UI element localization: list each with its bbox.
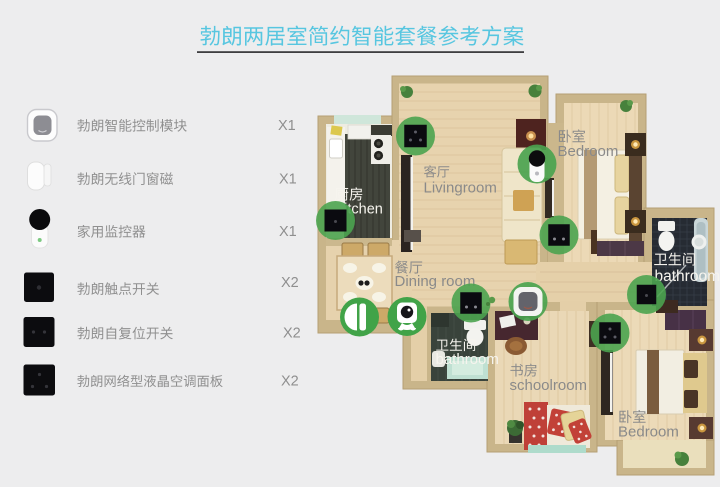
svg-text:bathroom: bathroom [436, 351, 499, 368]
svg-text:X1: X1 [279, 171, 297, 187]
svg-text:X1: X1 [279, 224, 297, 240]
svg-text:Bedroom: Bedroom [558, 143, 619, 160]
svg-text:X2: X2 [281, 373, 299, 389]
svg-text:Livingroom: Livingroom [424, 180, 497, 197]
svg-text:schoolroom: schoolroom [510, 377, 588, 394]
svg-text:Bedroom: Bedroom [618, 424, 679, 441]
svg-text:X2: X2 [281, 275, 299, 291]
svg-text:X2: X2 [283, 325, 301, 341]
svg-text:bathroom: bathroom [655, 268, 720, 285]
svg-text:X1: X1 [278, 118, 296, 134]
